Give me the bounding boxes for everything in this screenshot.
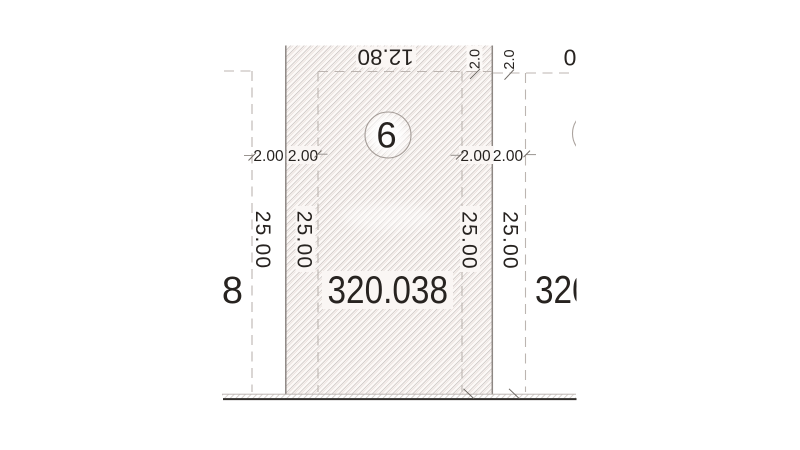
svg-text:2.0: 2.0	[502, 49, 518, 69]
svg-text:6: 6	[376, 115, 396, 156]
svg-text:25.00: 25.00	[458, 211, 481, 270]
svg-text:0: 0	[564, 45, 577, 71]
svg-text:12.80: 12.80	[357, 45, 413, 70]
svg-text:2.0: 2.0	[468, 49, 484, 69]
svg-text:8: 8	[222, 270, 243, 312]
svg-text:2.00: 2.00	[288, 148, 319, 165]
svg-text:25.00: 25.00	[499, 211, 522, 270]
svg-text:320.038: 320.038	[328, 269, 449, 312]
svg-text:25.00: 25.00	[251, 211, 274, 270]
svg-text:2.00: 2.00	[460, 148, 491, 165]
svg-text:25.00: 25.00	[293, 211, 316, 270]
svg-text:2.00: 2.00	[493, 148, 524, 165]
svg-text:2.00: 2.00	[253, 148, 284, 165]
